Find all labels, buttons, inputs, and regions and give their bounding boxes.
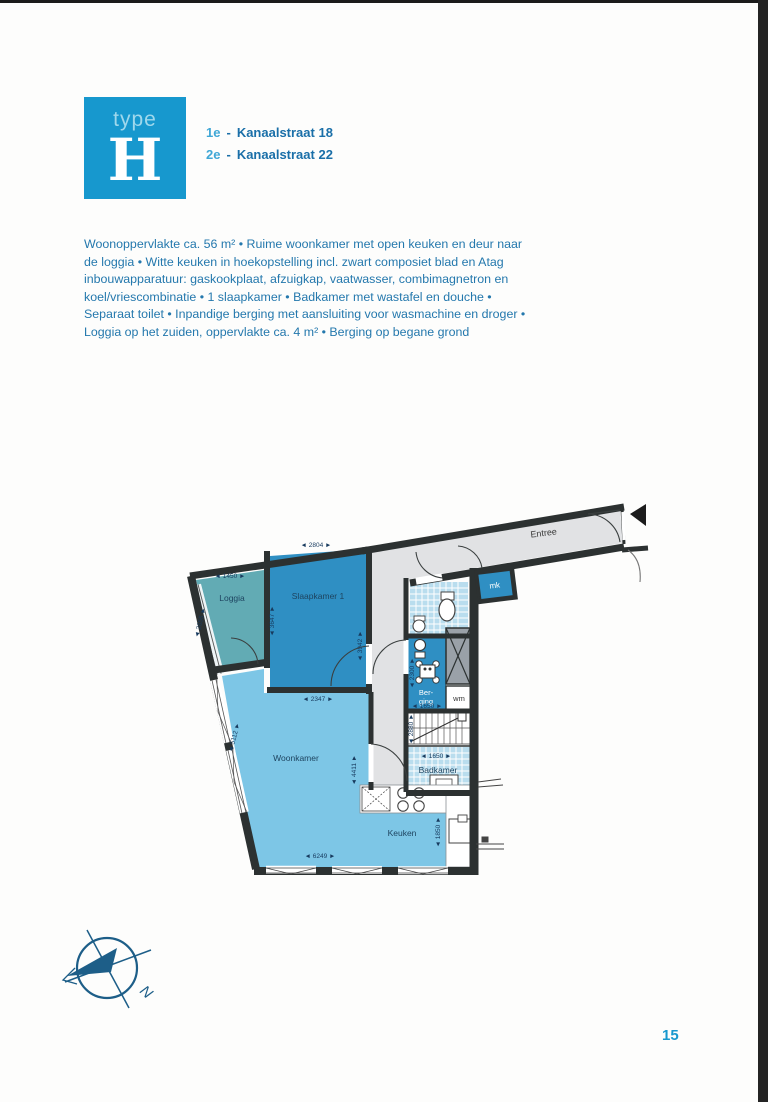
dim-slaapkamer-right: ◄ 3942 ► [357, 631, 364, 662]
address-prefix: 1e [206, 125, 220, 140]
address-name: Kanaalstraat 22 [237, 147, 333, 162]
toilet-basin-icon [413, 620, 425, 632]
brochure-page: type H 1e-Kanaalstraat 18 2e-Kanaalstraa… [0, 0, 768, 1102]
fridge-icon [449, 819, 471, 843]
address-prefix: 2e [206, 147, 220, 162]
room-label-slaapkamer: Slaapkamer 1 [292, 591, 345, 601]
dim-loggia-top: ◄ 1450 ► [215, 573, 246, 580]
address-separator: - [220, 147, 236, 162]
entrance-arrow-icon [630, 504, 646, 526]
description-paragraph: Woonoppervlakte ca. 56 m² • Ruime woonka… [84, 236, 528, 342]
toilet-room [410, 582, 468, 634]
type-logo-letter: H [108, 130, 163, 190]
dim-berging-left: ◄ 2300 ► [409, 658, 416, 689]
railing-detail-right [476, 779, 504, 849]
page-number: 15 [662, 1027, 679, 1044]
address-name: Kanaalstraat 18 [237, 125, 333, 140]
address-line: 1e-Kanaalstraat 18 [206, 122, 333, 144]
room-label-loggia: Loggia [219, 593, 245, 603]
staircase [408, 713, 470, 744]
room-label-badkamer: Badkamer [419, 765, 458, 775]
dim-slaapkamer-bottom: ◄ 2347 ► [303, 696, 334, 703]
stair-start-marker [458, 713, 466, 721]
room-label-berging-1: Ber- [419, 688, 434, 697]
dim-badkamer-top: ◄ 1650 ► [421, 753, 452, 760]
fridge-latch [458, 815, 467, 822]
compass-needle [67, 948, 117, 976]
address-line: 2e-Kanaalstraat 22 [206, 144, 333, 166]
slaapkamer-floor [270, 549, 367, 688]
room-label-woonkamer: Woonkamer [273, 753, 319, 763]
hall-floor [372, 579, 408, 790]
dim-woonkamer-bottom: ◄ 6249 ► [305, 853, 336, 860]
wall-stub-right [622, 548, 648, 550]
dim-slaapkamer-top: ◄ 2804 ► [301, 542, 332, 549]
scan-border-top [0, 0, 768, 3]
compass: N [55, 918, 160, 1023]
dim-keuken-right: ◄ 1850 ► [435, 817, 442, 848]
type-logo: type H [84, 97, 186, 199]
toilet-bowl-icon [439, 599, 455, 621]
door-swing-outside [628, 550, 640, 582]
compass-n-label: N [136, 982, 156, 1002]
room-label-keuken: Keuken [388, 828, 417, 838]
floor-plan: Entree Loggia Slaapkamer 1 Woonkamer Keu… [170, 488, 670, 888]
address-separator: - [220, 125, 236, 140]
dim-trap-left: ◄ 2880 ► [408, 714, 415, 745]
dim-keuken-left: ◄ 4411 ► [351, 755, 358, 785]
boiler-icon [415, 640, 426, 659]
room-label-wm: wm [452, 694, 465, 703]
dim-berging-bottom: ◄ 1650 ► [412, 703, 443, 710]
dim-slaapkamer-left: ◄ 3647 ► [269, 606, 276, 637]
scan-border-right [758, 0, 768, 1102]
address-list: 1e-Kanaalstraat 18 2e-Kanaalstraat 22 [206, 122, 333, 166]
room-label-mk: mk [489, 580, 502, 590]
